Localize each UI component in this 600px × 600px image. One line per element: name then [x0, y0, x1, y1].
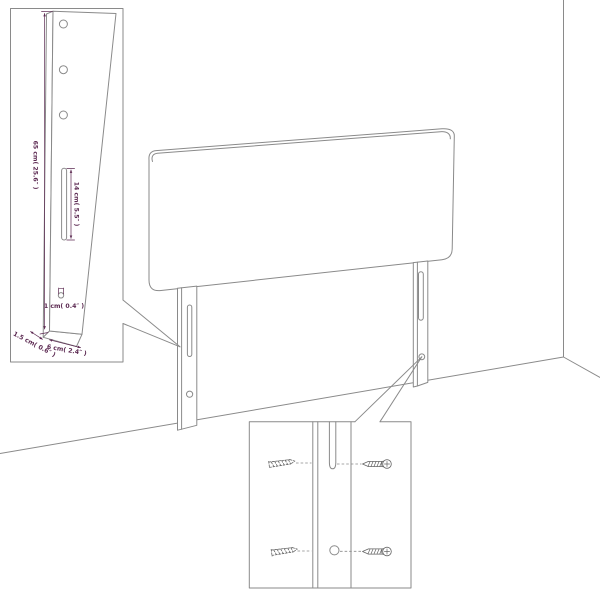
- screw-dashed-icon: [271, 546, 297, 556]
- small-screw-hole: [58, 293, 63, 298]
- height-dimension-label: 65 cm( 25.6″ ): [32, 141, 39, 190]
- assembly-diagram-canvas: 65 cm( 25.6″ ) 14 cm( 5.5″ ) 1 cm( 0.4″ …: [0, 0, 600, 600]
- leg-front-face: [50, 11, 117, 334]
- mounting-hole: [330, 546, 339, 555]
- mounting-slot: [329, 422, 335, 469]
- right-leg-mounting-slot: [419, 272, 424, 321]
- left-leg-mounting-slot: [187, 305, 191, 357]
- mounting-hole: [59, 66, 67, 74]
- callout-line: [380, 357, 422, 422]
- screw-detail-inset: [249, 422, 411, 588]
- dimension-line: [31, 332, 43, 340]
- floor-edge-left-line: [0, 357, 564, 454]
- mounting-hole: [59, 111, 67, 119]
- headboard-panel: [149, 129, 454, 291]
- callout-line: [123, 324, 180, 347]
- left-leg-screw-hole: [187, 391, 193, 397]
- mounting-slot: [62, 168, 67, 240]
- leg-dimension-inset: 65 cm( 25.6″ ) 14 cm( 5.5″ ) 1 cm( 0.4″ …: [11, 9, 124, 363]
- product-assembly-diagram: 65 cm( 25.6″ ) 14 cm( 5.5″ ) 1 cm( 0.4″ …: [0, 0, 600, 600]
- callout-lines-screw-inset: [355, 357, 422, 422]
- callout-line: [123, 300, 180, 347]
- callout-line: [355, 357, 422, 422]
- headboard-left-leg: [178, 286, 197, 430]
- screw-icon: [363, 547, 392, 556]
- mounting-hole: [59, 20, 67, 28]
- headboard: [149, 129, 454, 430]
- slot-dimension-label: 14 cm( 5.5″ ): [73, 182, 80, 227]
- screw-icon: [363, 460, 392, 469]
- inset-border: [249, 422, 411, 588]
- callout-lines-left-inset: [123, 300, 180, 347]
- screw-dashed-icon: [269, 458, 295, 468]
- floor-edge-right-line: [564, 357, 600, 378]
- hole-dimension-label: 1 cm( 0.4″ ): [44, 303, 84, 310]
- headboard-right-leg: [413, 261, 428, 387]
